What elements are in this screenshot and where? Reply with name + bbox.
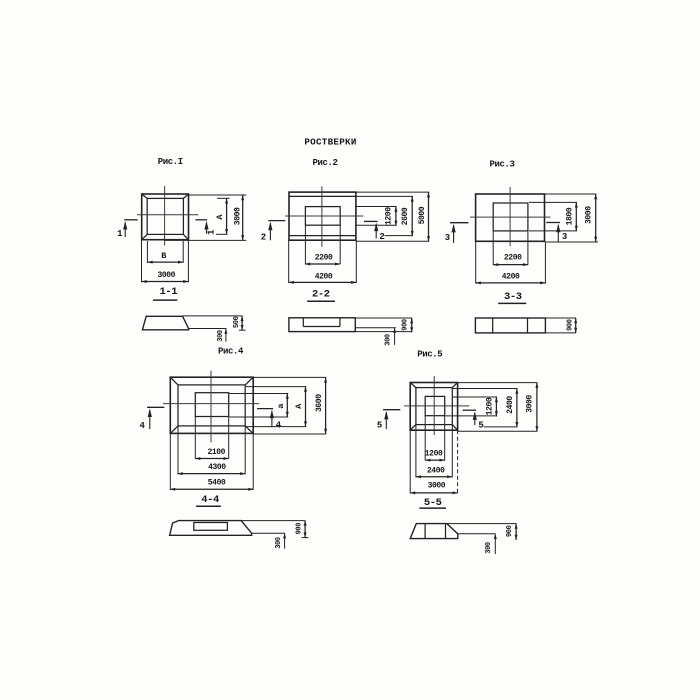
svg-text:1800: 1800 <box>565 207 574 225</box>
svg-text:3000: 3000 <box>234 207 243 225</box>
svg-text:2: 2 <box>261 232 266 242</box>
svg-text:3000: 3000 <box>526 395 535 413</box>
svg-text:5-5: 5-5 <box>424 497 442 509</box>
svg-text:300: 300 <box>275 537 283 549</box>
svg-text:300: 300 <box>485 542 493 554</box>
svg-text:3: 3 <box>562 232 567 242</box>
svg-text:3600: 3600 <box>315 394 324 412</box>
svg-text:5: 5 <box>478 421 483 431</box>
svg-text:4-4: 4-4 <box>201 494 219 506</box>
svg-text:Рис.3: Рис.3 <box>489 160 514 170</box>
svg-text:2400: 2400 <box>506 396 515 414</box>
svg-text:Рис.I: Рис.I <box>158 157 183 167</box>
svg-text:3000: 3000 <box>157 271 175 280</box>
svg-text:1200: 1200 <box>425 449 443 458</box>
svg-text:Рис.5: Рис.5 <box>417 349 442 359</box>
svg-text:300: 300 <box>384 334 392 346</box>
svg-text:1200: 1200 <box>486 397 495 415</box>
svg-text:300: 300 <box>217 330 225 342</box>
svg-text:Рис.4: Рис.4 <box>218 347 244 357</box>
svg-text:4200: 4200 <box>315 273 333 282</box>
svg-text:В: В <box>161 251 166 261</box>
svg-text:900: 900 <box>295 523 303 535</box>
svg-text:900: 900 <box>506 525 514 537</box>
svg-text:900: 900 <box>402 319 410 331</box>
svg-text:Рис.2: Рис.2 <box>312 158 337 168</box>
svg-text:5: 5 <box>377 420 382 430</box>
svg-text:3000: 3000 <box>584 206 593 224</box>
svg-text:5400: 5400 <box>208 479 226 488</box>
svg-text:2100: 2100 <box>207 448 225 457</box>
svg-text:3000: 3000 <box>428 482 446 491</box>
svg-text:2: 2 <box>379 232 384 242</box>
svg-text:1200: 1200 <box>385 207 394 225</box>
svg-text:4300: 4300 <box>208 463 226 472</box>
svg-text:2200: 2200 <box>315 253 333 262</box>
svg-text:2400: 2400 <box>427 466 445 475</box>
svg-text:2600: 2600 <box>401 207 410 225</box>
svg-text:3-3: 3-3 <box>504 291 522 303</box>
svg-text:1-1: 1-1 <box>159 286 177 298</box>
svg-text:900: 900 <box>566 319 574 331</box>
svg-text:500: 500 <box>233 316 241 328</box>
svg-text:2-2: 2-2 <box>312 288 330 300</box>
svg-text:2200: 2200 <box>504 253 522 262</box>
svg-text:3: 3 <box>445 233 450 243</box>
svg-text:а: а <box>276 404 286 409</box>
svg-text:4200: 4200 <box>502 272 520 281</box>
svg-text:РОСТВЕРКИ: РОСТВЕРКИ <box>304 137 356 148</box>
svg-text:5000: 5000 <box>418 206 427 224</box>
